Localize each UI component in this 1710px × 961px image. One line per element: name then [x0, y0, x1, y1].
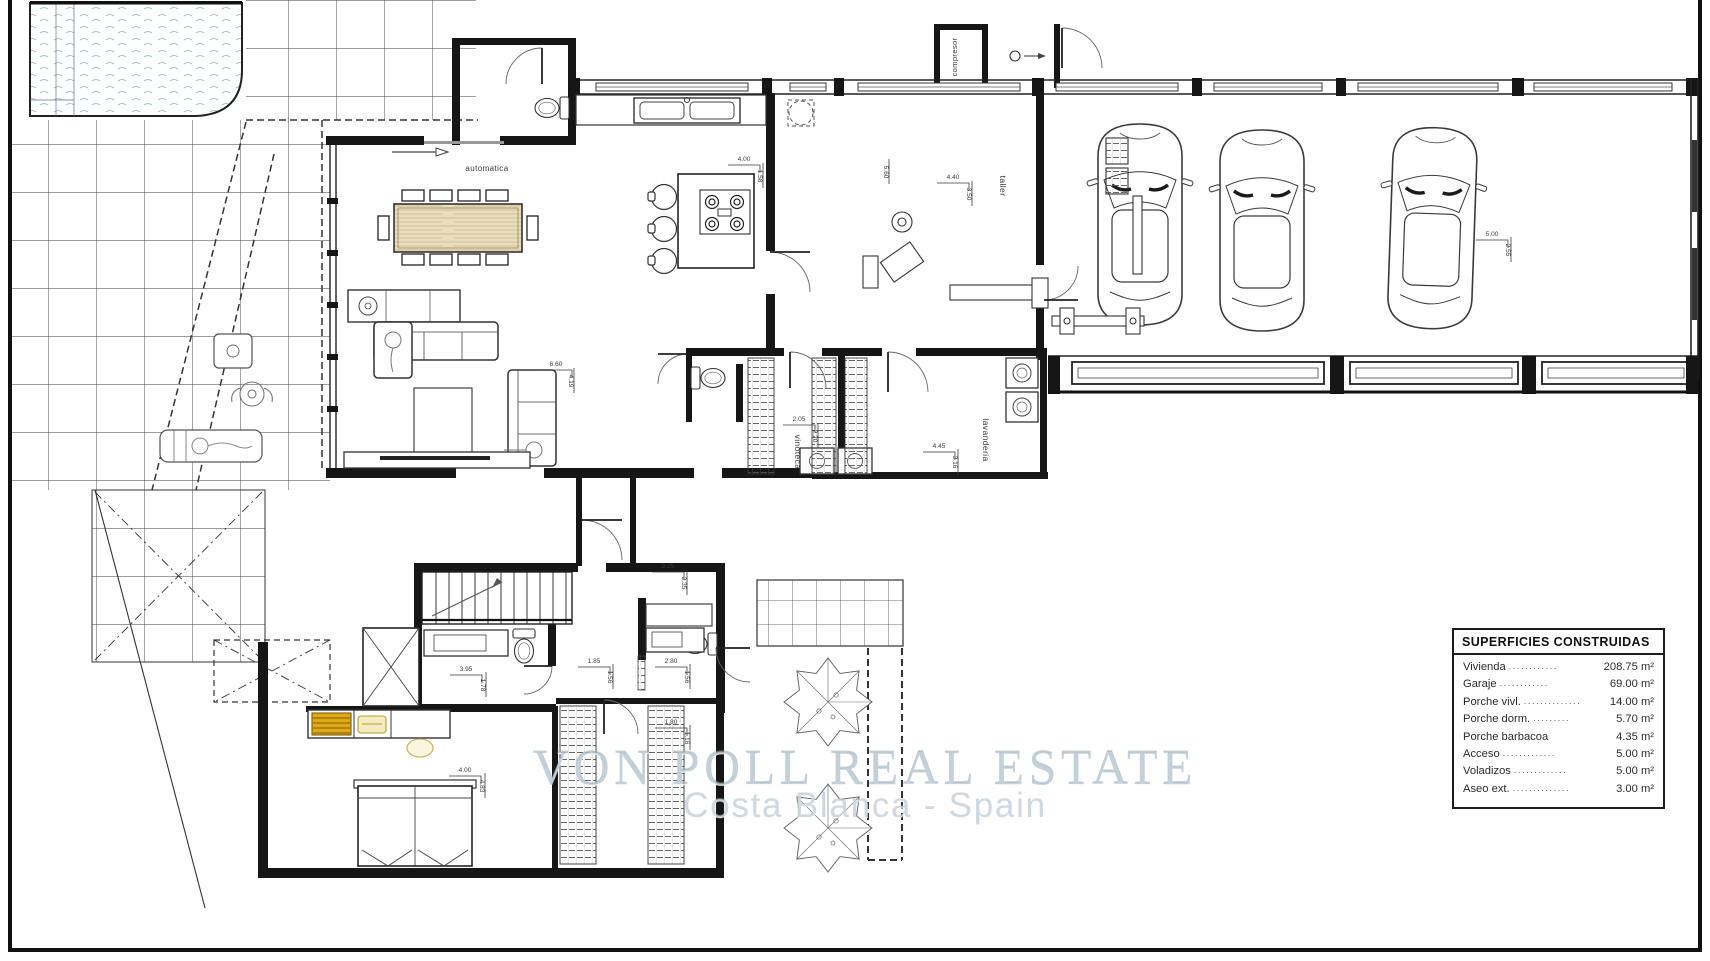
floorplan-sheet: compresortallerautomaticavinotecalavande…: [0, 0, 1710, 961]
elevator-shaft: [363, 628, 419, 706]
room-label: lavanderia: [981, 418, 991, 461]
closet-racks: [560, 706, 684, 864]
vanity-bath-1: [424, 630, 508, 656]
areas-row: Voladizos.............5.00 m²: [1454, 765, 1663, 782]
areas-dots: .............: [1503, 748, 1593, 758]
kitchen-counter: [576, 95, 814, 126]
areas-lbl: Acceso: [1463, 748, 1500, 760]
areas-lbl: Porche barbacoa: [1463, 731, 1548, 743]
dim-tick: [728, 165, 760, 173]
dim-label: 2.20: [811, 430, 818, 443]
floor-plan-svg: compresortallerautomaticavinotecalavande…: [0, 0, 1710, 961]
areas-row: Vivienda............208.75 m²: [1454, 661, 1663, 678]
areas-dots: ............: [1509, 661, 1593, 671]
toilet-entry-bath: [535, 97, 569, 119]
dim-label: 1.16: [683, 732, 690, 745]
dim-label: 4.45: [933, 443, 946, 450]
areas-lbl: Porche vivl.: [1463, 696, 1521, 708]
areas-lbl: Vivienda: [1463, 661, 1506, 673]
kitchen-island: [678, 174, 754, 268]
room-label: compresor: [950, 37, 959, 76]
dim-label: 1.56: [606, 671, 613, 684]
areas-val: 5.00 m²: [1596, 765, 1654, 777]
garage-south-band: [1048, 356, 1698, 394]
dim-tick: [450, 675, 482, 683]
areas-val: 5.00 m²: [1596, 748, 1654, 760]
dim-tick: [652, 572, 684, 580]
dim-label: 1.80: [665, 719, 678, 726]
car-3: [1376, 126, 1490, 331]
areas-lbl: Garaje: [1463, 678, 1497, 690]
areas-lbl: Porche dorm.: [1463, 713, 1530, 725]
wardrobe: [308, 710, 450, 738]
areas-dots: .............: [1514, 765, 1593, 775]
east-wall: [1691, 78, 1698, 378]
tree-2: [784, 784, 872, 872]
areas-val: 208.75 m²: [1596, 661, 1654, 673]
dim-label: 6.60: [550, 361, 563, 368]
sofa-1: [374, 322, 498, 378]
dim-label: 1.56: [683, 671, 690, 684]
dim-label: 4.83: [478, 780, 485, 793]
dim-tick: [655, 667, 687, 675]
areas-lbl: Aseo ext.: [1463, 783, 1510, 795]
dim-label: 1.78: [479, 679, 486, 692]
dining-table: [394, 204, 522, 252]
dim-label: 1.85: [588, 658, 601, 665]
areas-val: 5.70 m²: [1596, 713, 1654, 725]
dim-tick: [923, 452, 955, 460]
areas-dots: .........: [1533, 713, 1593, 723]
areas-table-title: SUPERFICIES CONSTRUIDAS: [1454, 630, 1663, 655]
toilet-wc: [691, 367, 725, 389]
areas-row: Porche barbacoa4.35 m²: [1454, 731, 1663, 748]
areas-val: 14.00 m²: [1596, 696, 1654, 708]
tree-1: [784, 658, 872, 746]
dim-label: 2.55: [1504, 244, 1511, 257]
dim-label: 2.35: [680, 577, 687, 590]
dim-tick: [578, 667, 610, 675]
room-label: taller: [998, 176, 1008, 197]
dim-label: 4.40: [947, 174, 960, 181]
ottoman: [407, 739, 433, 757]
stairs: [422, 572, 572, 624]
dim-label: 5.60: [882, 166, 889, 179]
room-label: vinoteca: [793, 435, 803, 470]
washer-dryer: [1006, 358, 1038, 422]
room-label: automatica: [465, 164, 508, 173]
pool: [30, 1, 242, 116]
dim-label: 3.16: [951, 456, 958, 469]
dim-tick: [783, 425, 815, 433]
vanity-bath-2: [638, 604, 712, 690]
outdoor-table: [214, 334, 252, 368]
areas-row: Garaje............69.00 m²: [1454, 678, 1663, 695]
areas-row: Porche dorm..........5.70 m²: [1454, 713, 1663, 730]
dim-label: 2.05: [793, 416, 806, 423]
areas-table-rows: Vivienda............208.75 m²Garaje.....…: [1454, 655, 1663, 807]
areas-row: Aseo ext...............3.00 m²: [1454, 783, 1663, 800]
areas-dots: ..............: [1513, 783, 1593, 793]
areas-val: 3.00 m²: [1596, 783, 1654, 795]
dim-label: 4.00: [738, 156, 751, 163]
dim-tick: [937, 183, 969, 191]
areas-val: 69.00 m²: [1596, 678, 1654, 690]
dim-tick: [1476, 240, 1508, 248]
north-window-band: [570, 78, 1698, 96]
bed: [354, 780, 476, 866]
areas-row: Acceso.............5.00 m²: [1454, 748, 1663, 765]
dim-label: 2.80: [665, 658, 678, 665]
dim-label: 1.58: [756, 170, 763, 183]
sun-lounger: [160, 430, 262, 462]
rug: [414, 388, 472, 458]
toilet-bath-1: [513, 629, 535, 663]
dim-label: 4.19: [567, 375, 574, 388]
areas-dots: ..............: [1524, 696, 1593, 706]
bar-stools: [648, 185, 677, 274]
dim-label: 3.25: [662, 563, 675, 570]
dim-label: 3.50: [965, 188, 972, 201]
car-2: [1209, 130, 1316, 331]
areas-row: Porche vivl...............14.00 m²: [1454, 696, 1663, 713]
areas-table: SUPERFICIES CONSTRUIDAS Vivienda........…: [1452, 628, 1665, 809]
areas-dots: ............: [1500, 678, 1593, 688]
areas-lbl: Voladizos: [1463, 765, 1511, 777]
dim-label: 4.00: [459, 767, 472, 774]
tv-cabinet: [344, 452, 530, 468]
dim-label: 3.95: [460, 666, 473, 673]
dim-label: 5.00: [1486, 231, 1499, 238]
areas-val: 4.35 m²: [1596, 731, 1654, 743]
sideboard: [348, 290, 460, 322]
